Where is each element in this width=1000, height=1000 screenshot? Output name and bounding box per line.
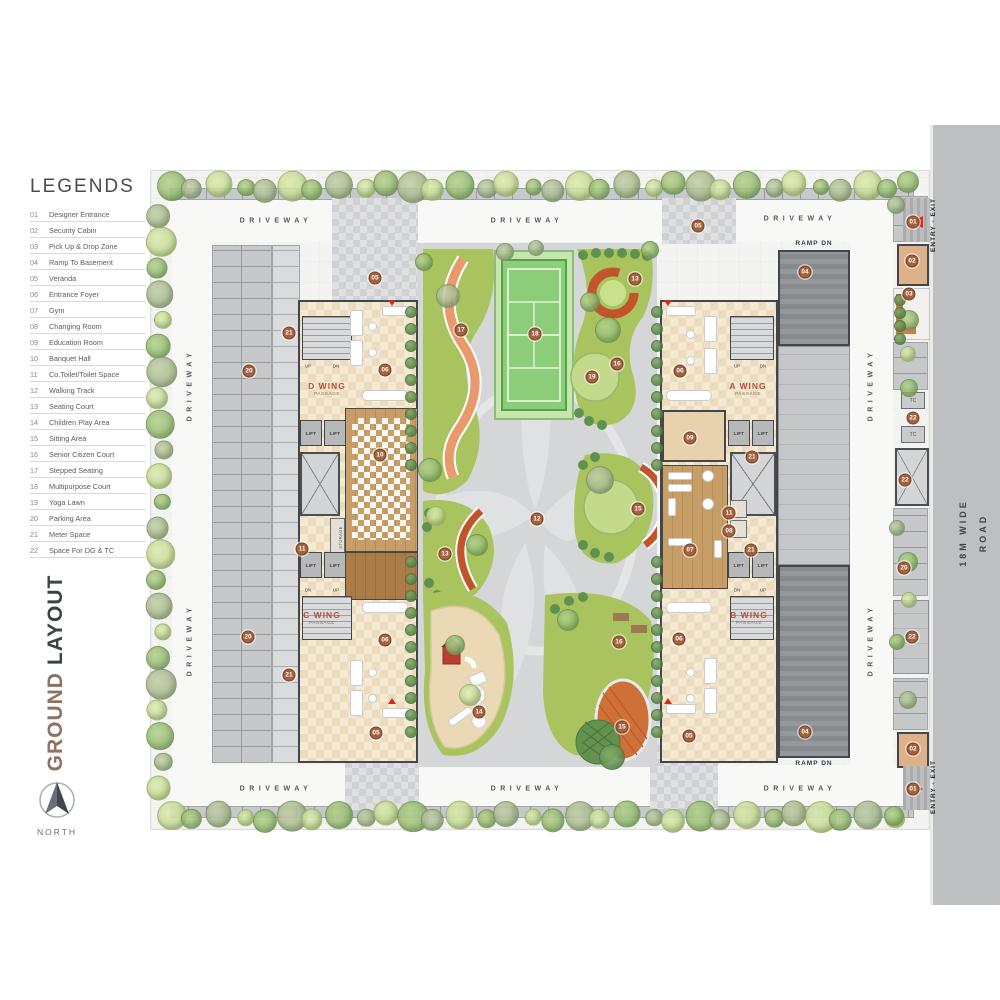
- tree: [146, 387, 168, 409]
- service-parking-mid: [778, 346, 850, 565]
- legend-item-label: Banquet Hall: [49, 354, 91, 363]
- gym-equipment: [702, 498, 714, 510]
- tree: [586, 466, 614, 494]
- tree: [405, 607, 417, 619]
- storage-label: STORAGE: [338, 526, 343, 549]
- sofa: [704, 316, 717, 342]
- tree: [405, 357, 417, 369]
- plan-marker-09: 09: [684, 432, 697, 445]
- wing-passage: PASSAGE: [735, 392, 761, 397]
- tree: [205, 801, 232, 828]
- plan-marker-13: 13: [439, 548, 452, 561]
- legend-item-11: 11Co.Toilet/Toilet Space: [30, 366, 146, 382]
- tree: [405, 675, 417, 687]
- legend-item-label: Designer Entrance: [49, 210, 109, 219]
- lift: LIFT: [324, 552, 346, 578]
- tree: [580, 292, 600, 312]
- legend-item-label: Security Cabin: [49, 226, 96, 235]
- plan-marker-04: 04: [799, 266, 812, 279]
- table: [686, 330, 695, 339]
- lift: LIFT: [752, 552, 774, 578]
- tree: [405, 641, 417, 653]
- tree: [889, 520, 905, 536]
- plan-marker-22: 22: [907, 412, 920, 425]
- table: [368, 322, 377, 331]
- legend-item-03: 03Pick Up & Drop Zone: [30, 238, 146, 254]
- legend-item-number: 09: [30, 338, 43, 347]
- legend-item-label: Sitting Area: [49, 434, 86, 443]
- legend-item-14: 14Children Play Area: [30, 414, 146, 430]
- sofa: [666, 704, 696, 714]
- legend-item-number: 20: [30, 514, 43, 523]
- entrance-marker: [664, 698, 672, 704]
- tree: [897, 171, 919, 193]
- driveway-left: [172, 242, 214, 765]
- plan-marker-16: 16: [611, 358, 624, 371]
- parking-area-left: [212, 245, 272, 763]
- lift: LIFT: [324, 420, 346, 446]
- legend-item-label: Meter Space: [49, 530, 90, 539]
- legend-item-number: 11: [30, 370, 43, 379]
- legend-item-21: 21Meter Space: [30, 526, 146, 542]
- legend-item-number: 15: [30, 434, 43, 443]
- tree: [651, 607, 663, 619]
- legend-item-label: Entrance Foyer: [49, 290, 99, 299]
- sofa: [350, 340, 363, 366]
- legend-item-number: 07: [30, 306, 43, 315]
- tree: [599, 744, 625, 770]
- plan-marker-11: 11: [296, 543, 309, 556]
- legend-item-10: 10Banquet Hall: [30, 350, 146, 366]
- lift: LIFT: [300, 552, 322, 578]
- sofa: [666, 306, 696, 316]
- legend-item-07: 07Gym: [30, 302, 146, 318]
- legend-item-18: 18Multipurpose Court: [30, 478, 146, 494]
- tree: [651, 306, 663, 318]
- tree: [894, 320, 906, 332]
- tree: [445, 635, 465, 655]
- tree: [405, 408, 417, 420]
- tree: [146, 669, 177, 700]
- tree: [146, 539, 176, 569]
- page-title-layout: LAYOUT: [44, 575, 67, 665]
- tree: [405, 442, 417, 454]
- plan-marker-12: 12: [531, 513, 544, 526]
- tree: [496, 243, 514, 261]
- tree: [889, 634, 905, 650]
- tree: [405, 590, 417, 602]
- legend-item-08: 08Changing Room: [30, 318, 146, 334]
- tree: [651, 709, 663, 721]
- tree: [146, 699, 167, 720]
- legend-item-02: 02Security Cabin: [30, 222, 146, 238]
- legend-item-12: 12Walking Track: [30, 382, 146, 398]
- tree: [595, 317, 621, 343]
- plan-marker-16: 16: [613, 636, 626, 649]
- tree: [525, 809, 542, 826]
- gym-equipment: [714, 540, 722, 558]
- up-label: UP: [734, 364, 740, 369]
- wing-passage: PASSAGE: [736, 621, 762, 626]
- service-strip-left: [272, 245, 300, 763]
- legend-item-label: Multipurpose Court: [49, 482, 111, 491]
- tree: [651, 573, 663, 585]
- table: [686, 694, 695, 703]
- tree: [405, 323, 417, 335]
- tree: [405, 374, 417, 386]
- legend-item-label: Co.Toilet/Toilet Space: [49, 370, 119, 379]
- tree: [146, 204, 170, 228]
- page-title-ground: GROUND: [44, 672, 67, 771]
- table: [368, 348, 377, 357]
- tree: [651, 624, 663, 636]
- legend-item-number: 01: [30, 210, 43, 219]
- legend-list: 01Designer Entrance02Security Cabin03Pic…: [30, 206, 146, 558]
- north-label: NORTH: [27, 827, 87, 837]
- ramp-label-bottom: RAMP DN: [778, 760, 850, 767]
- driveway-label: DRIVEWAY: [491, 786, 564, 793]
- legend-item-label: Pick Up & Drop Zone: [49, 242, 118, 251]
- plan-marker-21: 21: [283, 669, 296, 682]
- tree: [459, 684, 481, 706]
- tree: [613, 801, 640, 828]
- sofa: [704, 688, 717, 714]
- parking-divider: [241, 245, 242, 763]
- plan-marker-21: 21: [745, 544, 758, 557]
- plan-marker-05: 05: [369, 272, 382, 285]
- legend-item-number: 16: [30, 450, 43, 459]
- c-wing-label: C WING PASSAGE: [287, 610, 357, 626]
- legend-item-20: 20Parking Area: [30, 510, 146, 526]
- legend-item-number: 02: [30, 226, 43, 235]
- plan-marker-18: 18: [529, 328, 542, 341]
- tree: [651, 323, 663, 335]
- tree: [445, 801, 474, 830]
- driveway-label: DRIVEWAY: [764, 786, 837, 793]
- a-wing-label: A WING PASSAGE: [713, 381, 783, 397]
- ramp-label-top: RAMP DN: [778, 240, 850, 247]
- driveway-label: DRIVEWAY: [187, 604, 194, 677]
- legend-item-number: 17: [30, 466, 43, 475]
- driveway-label: DRIVEWAY: [868, 349, 875, 422]
- reception-desk: [362, 390, 408, 401]
- tree: [325, 171, 353, 199]
- dn-label: DN: [734, 588, 741, 593]
- ramp-to-basement-top: [778, 250, 850, 346]
- legend-item-04: 04Ramp To Basement: [30, 254, 146, 270]
- plan-marker-19: 19: [586, 371, 599, 384]
- plan-marker-17: 17: [455, 324, 468, 337]
- wing-passage: PASSAGE: [309, 621, 335, 626]
- tree: [405, 573, 417, 585]
- tree: [900, 379, 918, 397]
- tree: [445, 171, 474, 200]
- gym-equipment: [668, 484, 692, 492]
- legend-item-label: Ramp To Basement: [49, 258, 113, 267]
- legend-item-label: Stepped Seating: [49, 466, 103, 475]
- driveway-label: DRIVEWAY: [491, 218, 564, 225]
- plan-marker-20: 20: [243, 365, 256, 378]
- tree: [651, 726, 663, 738]
- plan-marker-10: 10: [374, 449, 387, 462]
- page-title: GROUNDLAYOUT: [44, 573, 70, 773]
- tree: [645, 809, 663, 827]
- tree: [237, 179, 255, 197]
- tree: [641, 241, 659, 259]
- road-label: 18M WIDE ROAD: [953, 483, 973, 583]
- plan-marker-15: 15: [632, 503, 645, 516]
- table: [686, 668, 695, 677]
- tc-box: TC: [901, 426, 925, 443]
- sofa: [350, 310, 363, 336]
- legend-item-number: 13: [30, 402, 43, 411]
- entry-exit-label-bottom: ENTRY - EXIT: [930, 745, 942, 829]
- up-label: UP: [305, 364, 311, 369]
- tree: [418, 458, 442, 482]
- wing-name: A WING: [729, 381, 766, 391]
- tree: [709, 179, 731, 201]
- tree: [405, 340, 417, 352]
- tree: [651, 556, 663, 568]
- plan-marker-03: 03: [903, 288, 916, 301]
- sofa: [350, 660, 363, 686]
- sofa: [704, 658, 717, 684]
- driveway-label: DRIVEWAY: [868, 604, 875, 677]
- tree: [651, 641, 663, 653]
- tree: [528, 240, 544, 256]
- tree: [146, 593, 173, 620]
- tree: [557, 609, 579, 631]
- legend-item-05: 05Veranda: [30, 270, 146, 286]
- dn-label: DN: [305, 588, 312, 593]
- legend-item-label: Education Room: [49, 338, 103, 347]
- tree: [899, 691, 917, 709]
- lift: LIFT: [300, 420, 322, 446]
- plan-marker-20: 20: [898, 562, 911, 575]
- sofa: [350, 690, 363, 716]
- wing-name: B WING: [730, 610, 768, 620]
- central-courtyard: [417, 243, 657, 767]
- legend-item-22: 22Space For DG & TC: [30, 542, 146, 558]
- tree: [405, 306, 417, 318]
- legend-item-01: 01Designer Entrance: [30, 206, 146, 222]
- lift: LIFT: [728, 552, 750, 578]
- tree: [436, 284, 460, 308]
- tree: [651, 590, 663, 602]
- service-shaft: [300, 452, 340, 516]
- tree: [651, 357, 663, 369]
- tree: [373, 801, 398, 826]
- tree: [651, 391, 663, 403]
- banquet-chairs: [352, 418, 410, 540]
- tree: [146, 463, 172, 489]
- plan-marker-04: 04: [799, 726, 812, 739]
- tree: [405, 459, 417, 471]
- tree: [901, 592, 917, 608]
- tree: [253, 809, 277, 833]
- plan-marker-07: 07: [684, 544, 697, 557]
- legend-title: LEGENDS: [30, 176, 135, 198]
- entry-exit-label-top: ENTRY - EXIT: [930, 183, 942, 267]
- tree: [325, 801, 353, 829]
- plan-marker-08: 08: [723, 525, 736, 538]
- wing-passage: PASSAGE: [314, 392, 340, 397]
- legend-item-number: 14: [30, 418, 43, 427]
- legend-item-label: Changing Room: [49, 322, 102, 331]
- tree: [651, 459, 663, 471]
- tree: [146, 280, 174, 308]
- plan-marker-05: 05: [683, 730, 696, 743]
- tree: [405, 391, 417, 403]
- tree: [405, 658, 417, 670]
- legend-item-label: Space For DG & TC: [49, 546, 114, 555]
- gym-equipment: [668, 472, 692, 480]
- legend-item-number: 05: [30, 274, 43, 283]
- plan-marker-01: 01: [907, 783, 920, 796]
- table: [368, 694, 377, 703]
- tree: [146, 776, 171, 801]
- driveway-label: DRIVEWAY: [240, 786, 313, 793]
- tree: [853, 801, 882, 830]
- plan-marker-14: 14: [473, 706, 486, 719]
- wing-name: C WING: [303, 610, 341, 620]
- tree: [894, 307, 906, 319]
- driveway-label: DRIVEWAY: [187, 349, 194, 422]
- tree: [733, 801, 761, 829]
- legend-item-number: 08: [30, 322, 43, 331]
- stairs-d-wing: [302, 316, 352, 360]
- legend-item-label: Parking Area: [49, 514, 91, 523]
- reception-desk: [666, 390, 712, 401]
- tree: [651, 442, 663, 454]
- legend-item-16: 16Senior Citizen Court: [30, 446, 146, 462]
- driveway-label: DRIVEWAY: [240, 218, 313, 225]
- plan-marker-15: 15: [616, 721, 629, 734]
- tree: [651, 692, 663, 704]
- tree: [405, 709, 417, 721]
- legend-item-label: Walking Track: [49, 386, 95, 395]
- plan-marker-13: 13: [629, 273, 642, 286]
- lift: LIFT: [728, 420, 750, 446]
- tree: [651, 374, 663, 386]
- tree: [405, 624, 417, 636]
- legend-item-number: 18: [30, 482, 43, 491]
- legend-item-label: Senior Citizen Court: [49, 450, 114, 459]
- plan-marker-02: 02: [906, 255, 919, 268]
- legend-item-number: 21: [30, 530, 43, 539]
- tree: [651, 675, 663, 687]
- plan-marker-01: 01: [907, 216, 920, 229]
- tree: [651, 408, 663, 420]
- tree: [894, 333, 906, 345]
- legend-item-15: 15Sitting Area: [30, 430, 146, 446]
- tree: [651, 340, 663, 352]
- tree: [146, 517, 169, 540]
- tree: [493, 801, 519, 827]
- plan-marker-06: 06: [673, 633, 686, 646]
- tree: [887, 196, 905, 214]
- tree: [884, 806, 904, 826]
- legend-item-label: Veranda: [49, 274, 76, 283]
- tree: [205, 171, 232, 198]
- tree: [146, 722, 174, 750]
- legend-item-label: Children Play Area: [49, 418, 109, 427]
- legend-item-number: 06: [30, 290, 43, 299]
- plan-marker-06: 06: [674, 365, 687, 378]
- tree: [415, 253, 433, 271]
- tree: [466, 534, 488, 556]
- gym-equipment: [702, 470, 714, 482]
- wing-name: D WING: [308, 381, 346, 391]
- legend-item-13: 13Seating Court: [30, 398, 146, 414]
- up-label: UP: [760, 588, 766, 593]
- plan-marker-06: 06: [379, 364, 392, 377]
- tree: [525, 179, 542, 196]
- b-wing-label: B WING PASSAGE: [714, 610, 784, 626]
- up-label: UP: [333, 588, 339, 593]
- tree: [900, 346, 916, 362]
- plan-marker-21: 21: [283, 327, 296, 340]
- lift: LIFT: [752, 420, 774, 446]
- plan-marker-11: 11: [723, 507, 736, 520]
- tree: [589, 179, 610, 200]
- plan-marker-21: 21: [746, 451, 759, 464]
- plan-marker-05: 05: [370, 727, 383, 740]
- ramp-to-basement-bottom: [778, 565, 850, 758]
- tree: [146, 334, 171, 359]
- plan-marker-22: 22: [899, 474, 912, 487]
- legend-item-number: 22: [30, 546, 43, 555]
- legend-item-label: Seating Court: [49, 402, 94, 411]
- legend-item-number: 04: [30, 258, 43, 267]
- plan-marker-05: 05: [692, 220, 705, 233]
- d-wing-label: D WING PASSAGE: [292, 381, 362, 397]
- reception-desk: [666, 602, 712, 613]
- ground-layout-page: 18M WIDE ROAD: [0, 0, 1000, 1000]
- legend-item-number: 03: [30, 242, 43, 251]
- plan-marker-02: 02: [907, 743, 920, 756]
- reception-desk: [362, 602, 408, 613]
- tree: [405, 425, 417, 437]
- tree: [651, 658, 663, 670]
- dn-label: DN: [333, 364, 340, 369]
- tree: [405, 726, 417, 738]
- table: [686, 356, 695, 365]
- tree: [405, 692, 417, 704]
- legend-item-number: 12: [30, 386, 43, 395]
- tree: [146, 410, 175, 439]
- legend-item-19: 19Yoga Lawn: [30, 494, 146, 510]
- tree: [813, 179, 829, 195]
- tree: [829, 179, 852, 202]
- legend-item-label: Yoga Lawn: [49, 498, 85, 507]
- table: [368, 668, 377, 677]
- tree: [405, 556, 417, 568]
- tree: [146, 646, 170, 670]
- entrance-marker: [664, 300, 672, 306]
- gym-equipment: [668, 498, 676, 516]
- sofa: [704, 348, 717, 374]
- tree: [146, 258, 167, 279]
- entrance-marker: [388, 698, 396, 704]
- legend-item-09: 09Education Room: [30, 334, 146, 350]
- driveway-right: [850, 242, 893, 765]
- north-compass-icon: [35, 778, 79, 822]
- plan-marker-22: 22: [906, 631, 919, 644]
- dn-label: DN: [760, 364, 767, 369]
- legend-item-label: Gym: [49, 306, 64, 315]
- legend-item-number: 19: [30, 498, 43, 507]
